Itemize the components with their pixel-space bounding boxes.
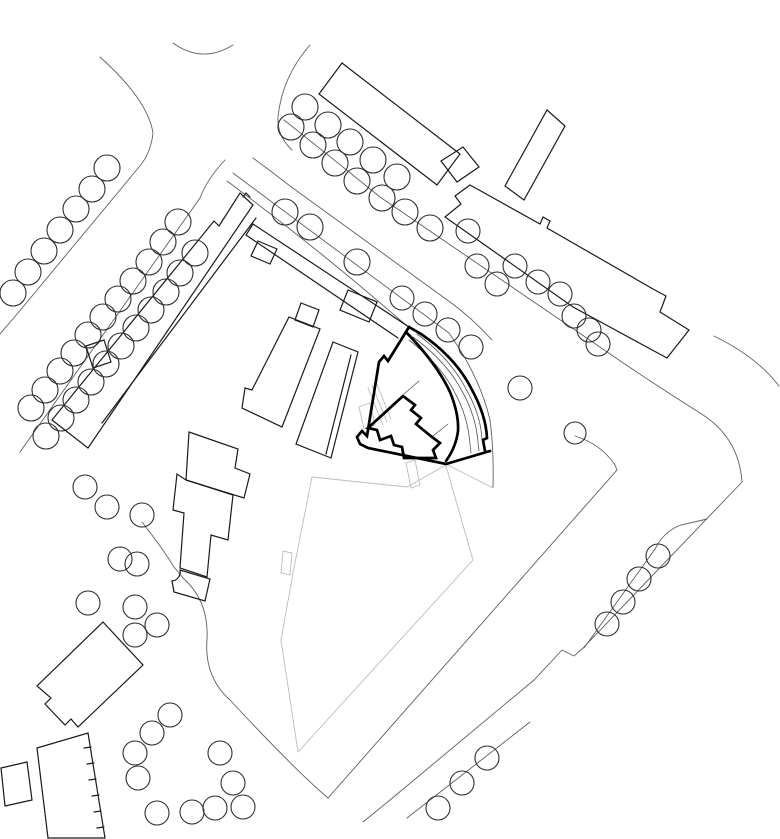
sidewalk-line-2 (227, 181, 407, 326)
tree-east-single-2 (564, 422, 586, 444)
layer-buildings (1, 63, 689, 838)
road-southeast-edge (363, 482, 742, 822)
tree-corridor-trees (344, 249, 370, 275)
tree-west-row-1 (136, 249, 162, 275)
tree-northeast-row-3 (456, 219, 480, 243)
tree-corridor-trees (297, 214, 323, 240)
tree-south-cluster (123, 741, 147, 765)
tree-northeast-row-3 (485, 272, 509, 296)
curved-band-inner (406, 332, 458, 461)
tree-west-row-1 (61, 340, 87, 366)
balcony-curve-2 (417, 334, 482, 440)
tree-northeast-row-3 (548, 282, 572, 306)
plot-boundary-left (281, 477, 312, 752)
tree-project-row (436, 318, 460, 342)
tree-south-cluster (125, 552, 149, 576)
house-c (172, 570, 210, 601)
center-slab-b-inner (326, 355, 351, 454)
road-se-ne-edge (284, 120, 742, 482)
long-building (52, 193, 253, 448)
terrace-strip-sw (246, 235, 398, 338)
road-south-edge (183, 436, 617, 798)
link-line-2 (433, 424, 448, 436)
plot-connector (446, 464, 493, 488)
tree-southeast-trio (475, 746, 499, 770)
tree-west-lower-trio (130, 503, 154, 527)
tree-west-row-1 (18, 395, 44, 421)
tree-northeast-row-2 (417, 215, 443, 241)
tree-project-row (413, 302, 437, 326)
tree-west-row-1 (150, 229, 176, 255)
tree-south-cluster (158, 703, 182, 727)
road-northeast-arc (714, 336, 779, 386)
sw-small-rect (1, 762, 32, 806)
tree-south-cluster (76, 591, 100, 615)
tree-upper-left-row (63, 196, 89, 222)
house-a (186, 432, 250, 498)
tree-south-cluster (231, 795, 255, 819)
tree-west-lower-trio (95, 495, 119, 519)
road-top-arc (173, 43, 233, 54)
tree-west-row-1 (120, 268, 146, 294)
ne-building-2-wing (505, 110, 565, 200)
tree-west-row-1 (47, 358, 73, 384)
house-b (173, 474, 233, 577)
tree-northeast-row-1 (360, 147, 386, 173)
tree-west-row-1 (165, 209, 191, 235)
boundary-marker-rect (281, 551, 292, 575)
tree-west-row-1 (75, 322, 101, 348)
tree-east-single-1 (508, 376, 532, 400)
tree-northeast-row-2 (300, 132, 326, 158)
tree-south-cluster (203, 796, 227, 820)
site-plan-svg (0, 0, 780, 839)
tree-west-row-1 (105, 286, 131, 312)
tree-south-cluster (126, 766, 150, 790)
tree-project-row (459, 335, 483, 359)
tree-west-lower-trio (73, 475, 97, 499)
tree-south-cluster (140, 721, 164, 745)
tree-south-cluster (145, 801, 169, 825)
layer-bold-building (357, 327, 490, 464)
ne-building-2 (445, 185, 689, 358)
tree-upper-left-row (31, 238, 57, 264)
link-line-1 (404, 381, 419, 394)
tree-south-cluster (208, 741, 232, 765)
tree-west-row-1 (90, 304, 116, 330)
tree-south-cluster (221, 771, 245, 795)
tree-west-row-2 (33, 423, 59, 449)
sidewalk-line-1 (233, 173, 493, 487)
tree-south-cluster (180, 800, 204, 824)
plot-boundary-top (312, 465, 446, 487)
block-fence-west (20, 160, 225, 452)
tree-south-cluster (123, 595, 147, 619)
garage-building (37, 733, 105, 838)
strip-bump-2 (340, 290, 377, 322)
ne-link-square (441, 147, 479, 182)
tree-south-cluster (145, 613, 169, 637)
layer-trees (0, 94, 670, 825)
tree-south-cluster (123, 623, 147, 647)
tree-west-row-1 (32, 377, 58, 403)
plot-boundary-right (298, 466, 473, 752)
tree-northeast-row-2 (322, 150, 348, 176)
tree-upper-left-row (47, 217, 73, 243)
center-slab-b (296, 342, 358, 458)
site-plan-canvas (0, 0, 780, 839)
terrace-strip-ne (253, 224, 409, 327)
tree-northeast-row-2 (278, 114, 304, 140)
balcony-curve-3 (409, 340, 471, 453)
house-d (37, 622, 143, 727)
strip-bump-1 (251, 241, 277, 264)
tree-northeast-row-3 (586, 332, 610, 356)
tree-northeast-row-2 (344, 168, 370, 194)
inner-house (368, 396, 440, 458)
tree-northeast-row-1 (292, 94, 318, 120)
tree-south-cluster (108, 547, 132, 571)
tree-northeast-row-3 (465, 254, 489, 278)
tree-upper-left-row (0, 280, 26, 306)
tree-northeast-row-2 (392, 199, 418, 225)
tree-northeast-row-3 (577, 318, 601, 342)
tree-southeast-trio (426, 796, 450, 820)
tree-northeast-row-1 (315, 112, 341, 138)
